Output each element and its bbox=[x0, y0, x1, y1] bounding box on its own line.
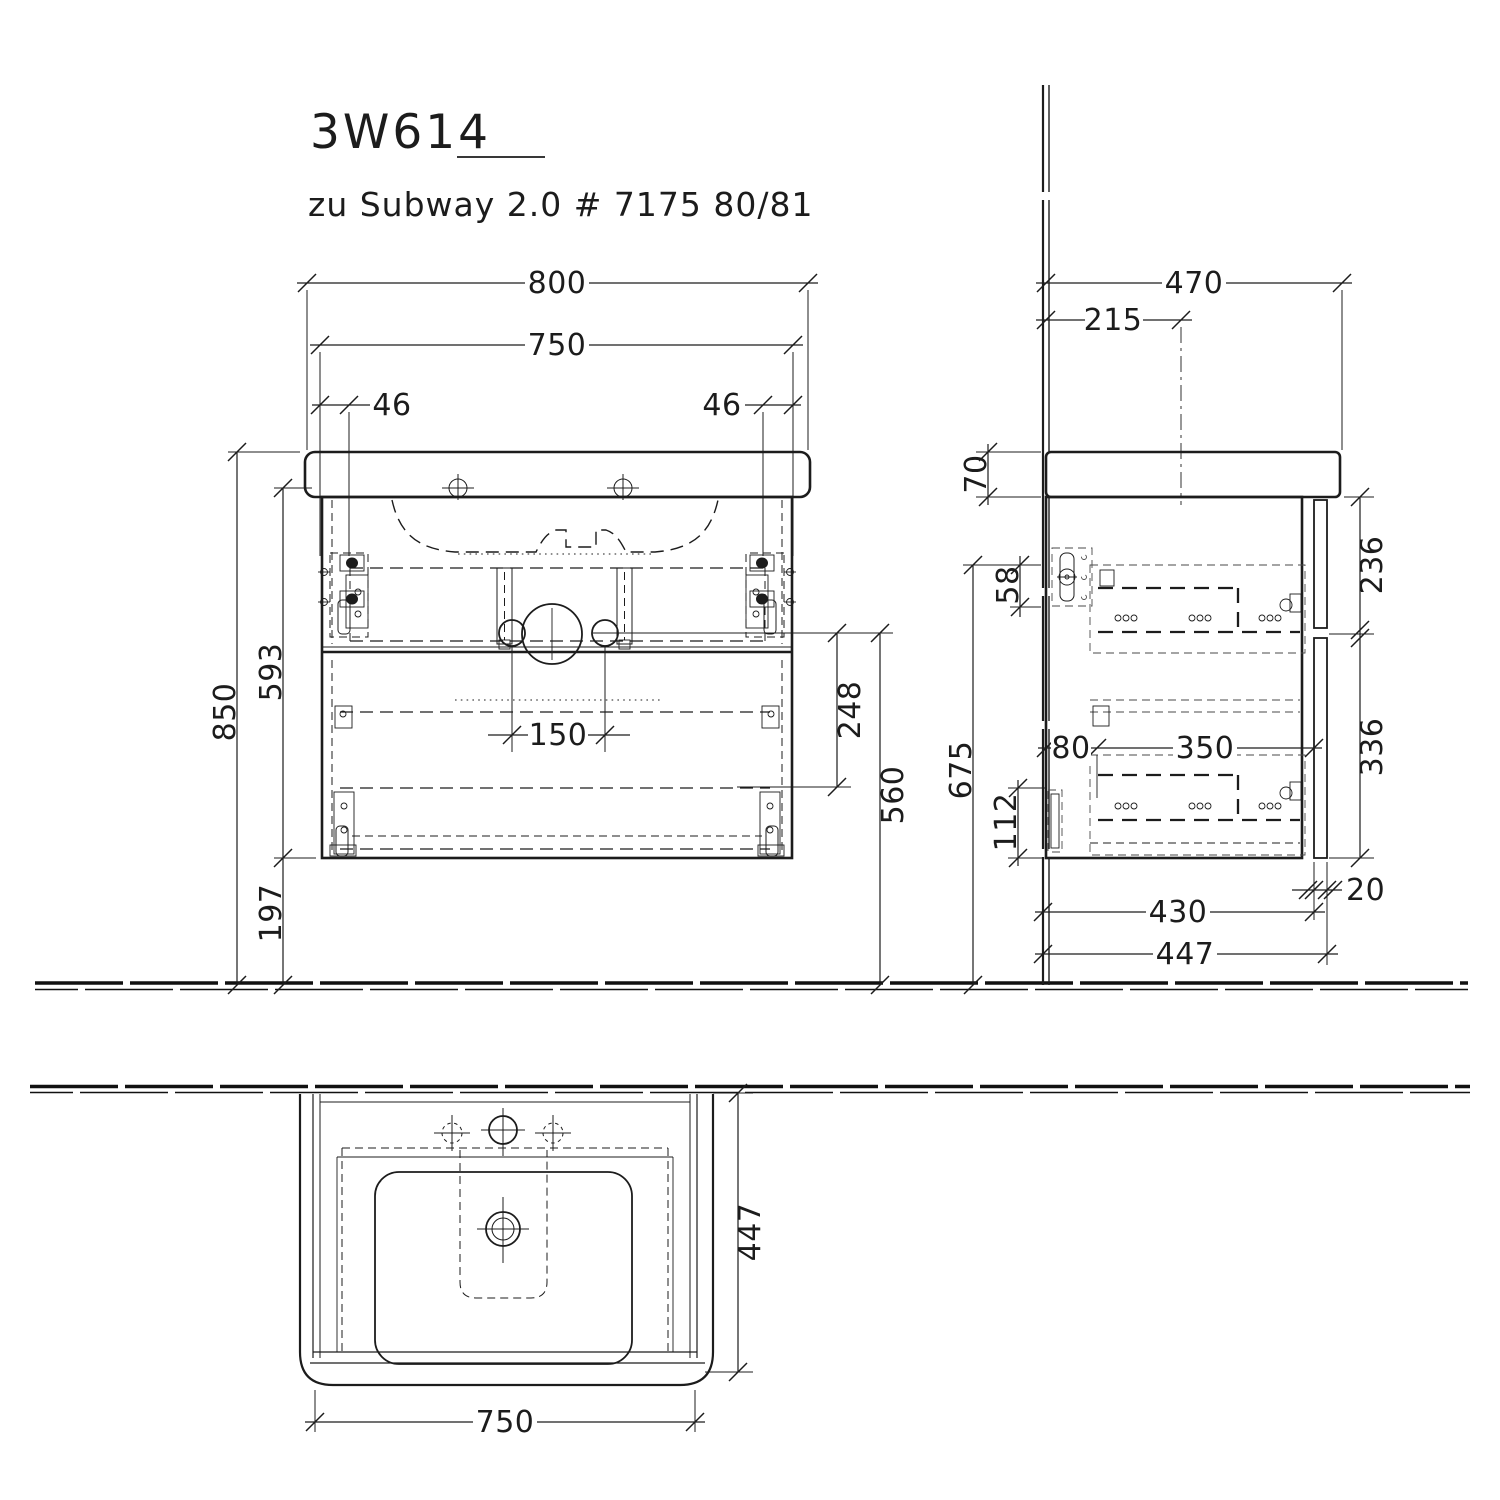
dim-side-basin-depth: 470 bbox=[1036, 266, 1352, 450]
dim-front-bracket-right: 46 bbox=[702, 388, 802, 556]
wall-section-line bbox=[30, 1087, 1470, 1093]
upper-drawer-front bbox=[1314, 500, 1327, 628]
dim-label: 197 bbox=[254, 884, 289, 943]
vanity-dimension-drawing: 3W614 zu Subway 2.0 # 7175 80/81 bbox=[0, 0, 1500, 1500]
technical-drawing-page: 3W614 zu Subway 2.0 # 7175 80/81 bbox=[0, 0, 1500, 1500]
dim-side-bracket-height: 58 bbox=[963, 556, 1041, 617]
dim-label: 112 bbox=[989, 793, 1024, 852]
dim-side-carcass-depth: 430 bbox=[1034, 895, 1325, 930]
dim-plan-width: 750 bbox=[305, 1390, 705, 1440]
dim-label: 350 bbox=[1176, 731, 1235, 766]
side-view: 470 215 70 bbox=[944, 85, 1390, 994]
side-lower-drawer bbox=[1048, 700, 1305, 855]
dim-label: 447 bbox=[733, 1203, 768, 1262]
dim-side-lower-mount: 112 bbox=[989, 779, 1046, 867]
side-cabinet bbox=[1046, 497, 1327, 858]
mounting-bracket-right bbox=[746, 553, 796, 637]
dim-label: 236 bbox=[1355, 536, 1390, 595]
dim-label: 447 bbox=[1156, 937, 1215, 972]
lower-slide-bracket-right bbox=[758, 792, 784, 856]
hidden-basin-outline bbox=[392, 500, 718, 552]
dim-label: 430 bbox=[1149, 895, 1208, 930]
mounting-bracket-left bbox=[318, 553, 368, 637]
drawing-number: 3W614 bbox=[310, 105, 491, 160]
dim-label: 750 bbox=[528, 328, 587, 363]
dim-side-basin-thickness: 70 bbox=[959, 443, 1041, 506]
side-wall-bracket bbox=[1052, 548, 1092, 606]
dim-label: 800 bbox=[528, 266, 587, 301]
dim-side-wall-mount-height: 675 bbox=[944, 556, 982, 994]
cabinet-outline bbox=[322, 497, 792, 858]
dim-label: 46 bbox=[702, 388, 741, 423]
dim-side-total-depth: 447 bbox=[1034, 937, 1338, 972]
dim-label: 470 bbox=[1165, 266, 1224, 301]
tap-hole-center-icon bbox=[481, 1108, 525, 1156]
washbasin-outline bbox=[305, 452, 810, 497]
dim-label: 215 bbox=[1084, 303, 1143, 338]
dim-front-cabinet-height: 593 bbox=[254, 479, 312, 867]
dim-label: 560 bbox=[876, 766, 911, 825]
dim-label: 150 bbox=[529, 718, 588, 753]
dim-label: 850 bbox=[208, 683, 243, 742]
dim-front-cabinet-width: 750 bbox=[310, 328, 803, 556]
dim-label: 20 bbox=[1346, 873, 1385, 908]
dim-side-front-heights: 236 336 bbox=[1329, 488, 1390, 867]
dim-plan-depth: 447 bbox=[705, 1084, 768, 1381]
siphon-rail bbox=[617, 568, 632, 649]
plan-basin-edges bbox=[337, 1148, 673, 1364]
drain-outlet bbox=[499, 604, 618, 664]
dim-front-floor-clearance: 197 bbox=[254, 858, 316, 994]
side-dimensions: 470 215 70 bbox=[944, 266, 1390, 994]
front-view: 800 750 46 46 bbox=[208, 266, 911, 994]
dim-label: 46 bbox=[372, 388, 411, 423]
dim-label: 336 bbox=[1355, 718, 1390, 777]
dim-side-door-thickness: 20 bbox=[1292, 862, 1385, 965]
dim-label: 750 bbox=[476, 1405, 535, 1440]
dim-label: 593 bbox=[254, 643, 289, 702]
front-washbasin bbox=[305, 452, 810, 500]
tap-hole-left-icon bbox=[434, 1115, 470, 1151]
dim-front-drain-spacing: 150 bbox=[488, 646, 630, 753]
lower-slide-bracket-left bbox=[330, 792, 356, 856]
title-block: 3W614 zu Subway 2.0 # 7175 80/81 bbox=[308, 105, 813, 224]
dim-front-bracket-left: 46 bbox=[311, 388, 412, 556]
dim-label: 248 bbox=[833, 681, 868, 740]
dim-label: 80 bbox=[1051, 731, 1090, 766]
dim-front-mount-drop: 248 bbox=[593, 624, 893, 796]
plan-drain-icon bbox=[477, 1197, 529, 1263]
dim-label: 58 bbox=[991, 565, 1026, 604]
front-cabinet bbox=[318, 497, 796, 858]
side-upper-drawer bbox=[1090, 565, 1305, 653]
plan-view: 447 750 bbox=[300, 1084, 768, 1440]
dim-front-drain-height: 560 bbox=[871, 624, 911, 994]
dim-label: 70 bbox=[959, 454, 994, 493]
drawing-subtitle: zu Subway 2.0 # 7175 80/81 bbox=[308, 185, 813, 224]
tap-hole-right-icon bbox=[535, 1115, 571, 1151]
dim-label: 675 bbox=[944, 741, 979, 800]
floor-line bbox=[35, 983, 1468, 990]
dim-side-rail: 80 350 bbox=[1037, 731, 1323, 798]
side-washbasin bbox=[1046, 452, 1340, 497]
front-dimensions: 800 750 46 46 bbox=[208, 266, 911, 994]
